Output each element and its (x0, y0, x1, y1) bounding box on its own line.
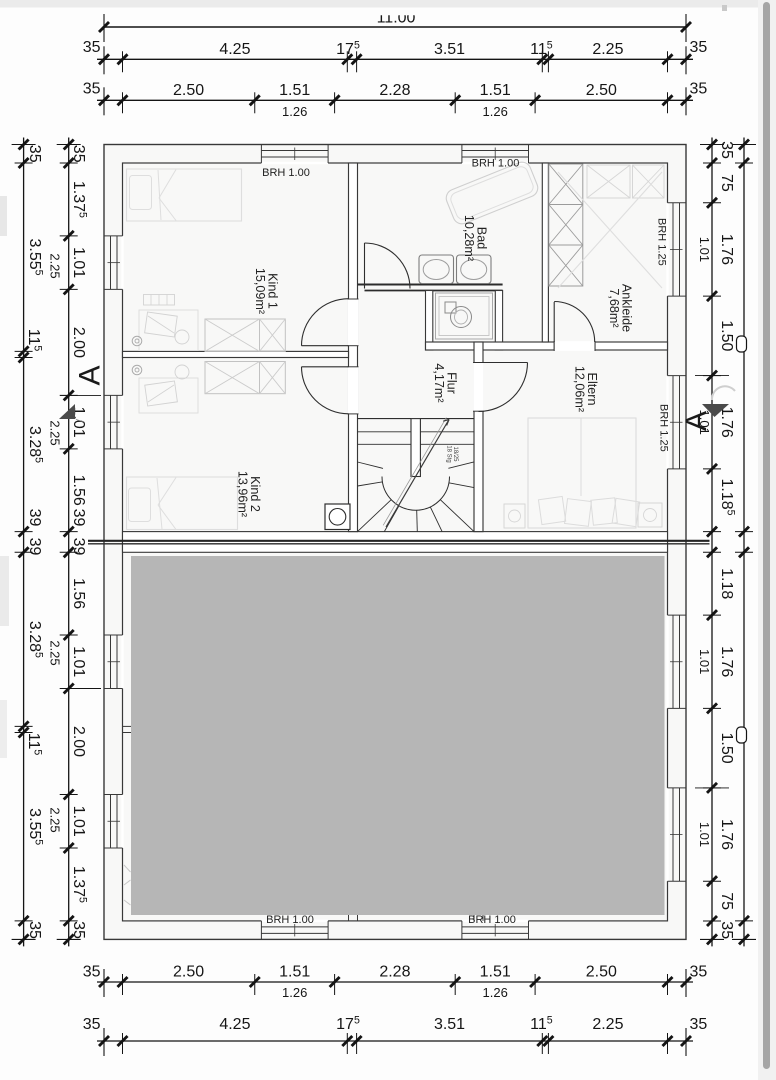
svg-text:15,09m²: 15,09m² (253, 268, 267, 314)
svg-text:2.25: 2.25 (48, 807, 63, 832)
svg-text:35: 35 (83, 39, 101, 56)
svg-text:2.50: 2.50 (586, 82, 617, 99)
svg-text:35: 35 (83, 1016, 101, 1033)
svg-text:1.01: 1.01 (697, 822, 712, 847)
svg-text:2.25: 2.25 (592, 1016, 623, 1033)
svg-text:1.56: 1.56 (70, 475, 87, 506)
svg-text:1.26: 1.26 (282, 104, 307, 119)
svg-text:2.25: 2.25 (48, 640, 63, 665)
svg-text:1.51: 1.51 (279, 964, 310, 981)
svg-text:1.76: 1.76 (718, 234, 735, 265)
svg-text:35: 35 (718, 921, 735, 939)
svg-text:35: 35 (70, 145, 87, 163)
svg-text:1.56: 1.56 (70, 578, 87, 609)
svg-text:1.01: 1.01 (70, 646, 87, 677)
svg-text:3.51: 3.51 (434, 41, 465, 58)
svg-text:35: 35 (690, 39, 708, 56)
svg-text:1.26: 1.26 (483, 104, 508, 119)
svg-text:1.26: 1.26 (282, 985, 307, 1000)
svg-text:4,17m²: 4,17m² (432, 363, 446, 402)
svg-text:13,96m²: 13,96m² (235, 471, 249, 517)
svg-text:2.28: 2.28 (379, 82, 410, 99)
svg-text:10,28m²: 10,28m² (462, 215, 476, 261)
svg-text:2.00: 2.00 (70, 327, 87, 358)
svg-text:BRH 1.25: BRH 1.25 (658, 404, 670, 452)
svg-text:35: 35 (26, 921, 43, 939)
svg-text:BRH 1.00: BRH 1.00 (468, 914, 516, 926)
svg-text:35: 35 (70, 921, 87, 939)
svg-text:75: 75 (718, 174, 735, 192)
svg-text:BRH 1.25: BRH 1.25 (656, 218, 668, 266)
svg-text:1.76: 1.76 (718, 819, 735, 850)
svg-text:7,68m²: 7,68m² (607, 288, 621, 327)
svg-text:35: 35 (690, 80, 708, 97)
svg-text:12,06m²: 12,06m² (572, 366, 586, 412)
svg-text:BRH 1.00: BRH 1.00 (262, 167, 310, 179)
svg-text:1.50: 1.50 (718, 320, 735, 351)
svg-text:18/25: 18/25 (452, 446, 458, 462)
svg-text:39: 39 (70, 509, 87, 527)
svg-text:1.50: 1.50 (718, 733, 735, 764)
svg-text:1.76: 1.76 (718, 646, 735, 677)
svg-text:2.25: 2.25 (592, 41, 623, 58)
svg-text:BRH 1.00: BRH 1.00 (472, 158, 520, 170)
svg-text:2.50: 2.50 (173, 964, 204, 981)
svg-text:35: 35 (718, 141, 735, 159)
svg-text:39: 39 (26, 509, 43, 527)
svg-text:2.50: 2.50 (173, 82, 204, 99)
svg-text:1.01: 1.01 (697, 649, 712, 674)
svg-text:2.25: 2.25 (48, 253, 63, 278)
svg-text:A: A (74, 365, 107, 385)
svg-text:1.51: 1.51 (480, 82, 511, 99)
svg-text:2.25: 2.25 (48, 420, 63, 445)
svg-text:1.01: 1.01 (70, 806, 87, 837)
svg-text:4.25: 4.25 (219, 1016, 250, 1033)
svg-text:35: 35 (26, 145, 43, 163)
svg-text:75: 75 (718, 892, 735, 910)
svg-text:35: 35 (690, 1016, 708, 1033)
svg-text:4.25: 4.25 (219, 41, 250, 58)
svg-text:1.18: 1.18 (718, 568, 735, 599)
svg-text:1.01: 1.01 (70, 247, 87, 278)
svg-text:A: A (680, 411, 713, 431)
svg-text:35: 35 (83, 80, 101, 97)
svg-text:1.51: 1.51 (480, 964, 511, 981)
svg-text:2.28: 2.28 (379, 964, 410, 981)
svg-text:18 Stg: 18 Stg (446, 445, 452, 462)
svg-text:2.00: 2.00 (70, 726, 87, 757)
svg-text:39: 39 (70, 538, 87, 556)
svg-text:3.51: 3.51 (434, 1016, 465, 1033)
svg-text:35: 35 (83, 964, 101, 981)
svg-text:39: 39 (26, 538, 43, 556)
svg-text:35: 35 (690, 964, 708, 981)
svg-text:BRH 1.00: BRH 1.00 (266, 914, 314, 926)
svg-text:1.26: 1.26 (483, 985, 508, 1000)
svg-text:1.51: 1.51 (279, 82, 310, 99)
svg-text:2.50: 2.50 (586, 964, 617, 981)
svg-text:1.01: 1.01 (697, 237, 712, 262)
